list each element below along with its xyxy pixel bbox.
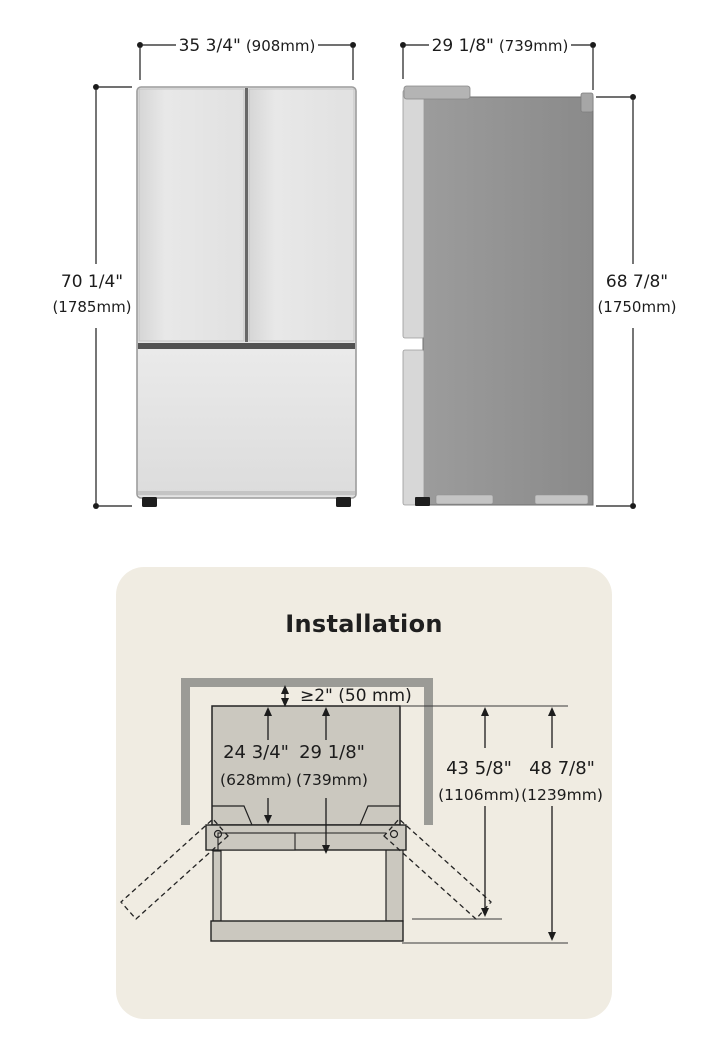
depth-dim-3-in: 43 5/8" — [446, 758, 512, 779]
side-base-plate-front — [436, 495, 493, 504]
front-left-door — [139, 89, 244, 341]
front-left-foot — [142, 497, 157, 507]
side-view — [403, 86, 593, 506]
side-body — [423, 97, 593, 505]
front-right-foot — [336, 497, 351, 507]
depth-dim-4-mm: (1239mm) — [521, 786, 603, 804]
product-dimensions-page: 35 3/4"(908mm) 70 1/4" (1785mm) 29 1/8"(… — [0, 0, 728, 1050]
depth-dim-2-mm: (739mm) — [296, 771, 368, 789]
depth-dim-3-mm: (1106mm) — [438, 786, 520, 804]
side-base-plate-rear — [535, 495, 588, 504]
top-clearance-dimension: ≥2" (50 mm) — [281, 685, 412, 707]
side-top-cap — [404, 86, 470, 99]
side-height-label-in: 68 7/8" — [606, 272, 668, 292]
side-door-edge-upper — [403, 90, 424, 338]
front-height-dimension — [93, 84, 132, 509]
front-height-label-in: 70 1/4" — [61, 272, 123, 292]
fridge-top-view-body — [212, 706, 400, 825]
open-door-footprint — [211, 921, 403, 941]
spec-diagram: 35 3/4"(908mm) 70 1/4" (1785mm) 29 1/8"(… — [0, 0, 728, 1050]
front-height-label-mm: (1785mm) — [52, 298, 131, 316]
installation-title: Installation — [285, 610, 443, 638]
side-hinge-tab — [581, 93, 593, 112]
front-width-label: 35 3/4"(908mm) — [179, 36, 316, 56]
front-view — [137, 87, 356, 507]
side-front-foot — [415, 497, 430, 506]
front-bottom-shadow — [138, 491, 355, 495]
top-clearance-label: ≥2" (50 mm) — [300, 686, 412, 706]
side-depth-label: 29 1/8"(739mm) — [432, 36, 569, 56]
front-freezer-drawer — [138, 349, 355, 496]
side-height-label-mm: (1750mm) — [597, 298, 676, 316]
depth-dim-4-in: 48 7/8" — [529, 758, 595, 779]
front-right-door — [249, 89, 354, 341]
depth-dim-1-mm: (628mm) — [220, 771, 292, 789]
depth-dim-2-in: 29 1/8" — [299, 742, 365, 763]
front-door-seam — [245, 88, 248, 342]
depth-dim-1-in: 24 3/4" — [223, 742, 289, 763]
front-drawer-gap — [138, 343, 355, 349]
left-door-panel — [218, 833, 295, 850]
left-door-open-90 — [213, 851, 221, 921]
side-door-edge-lower — [403, 350, 424, 505]
